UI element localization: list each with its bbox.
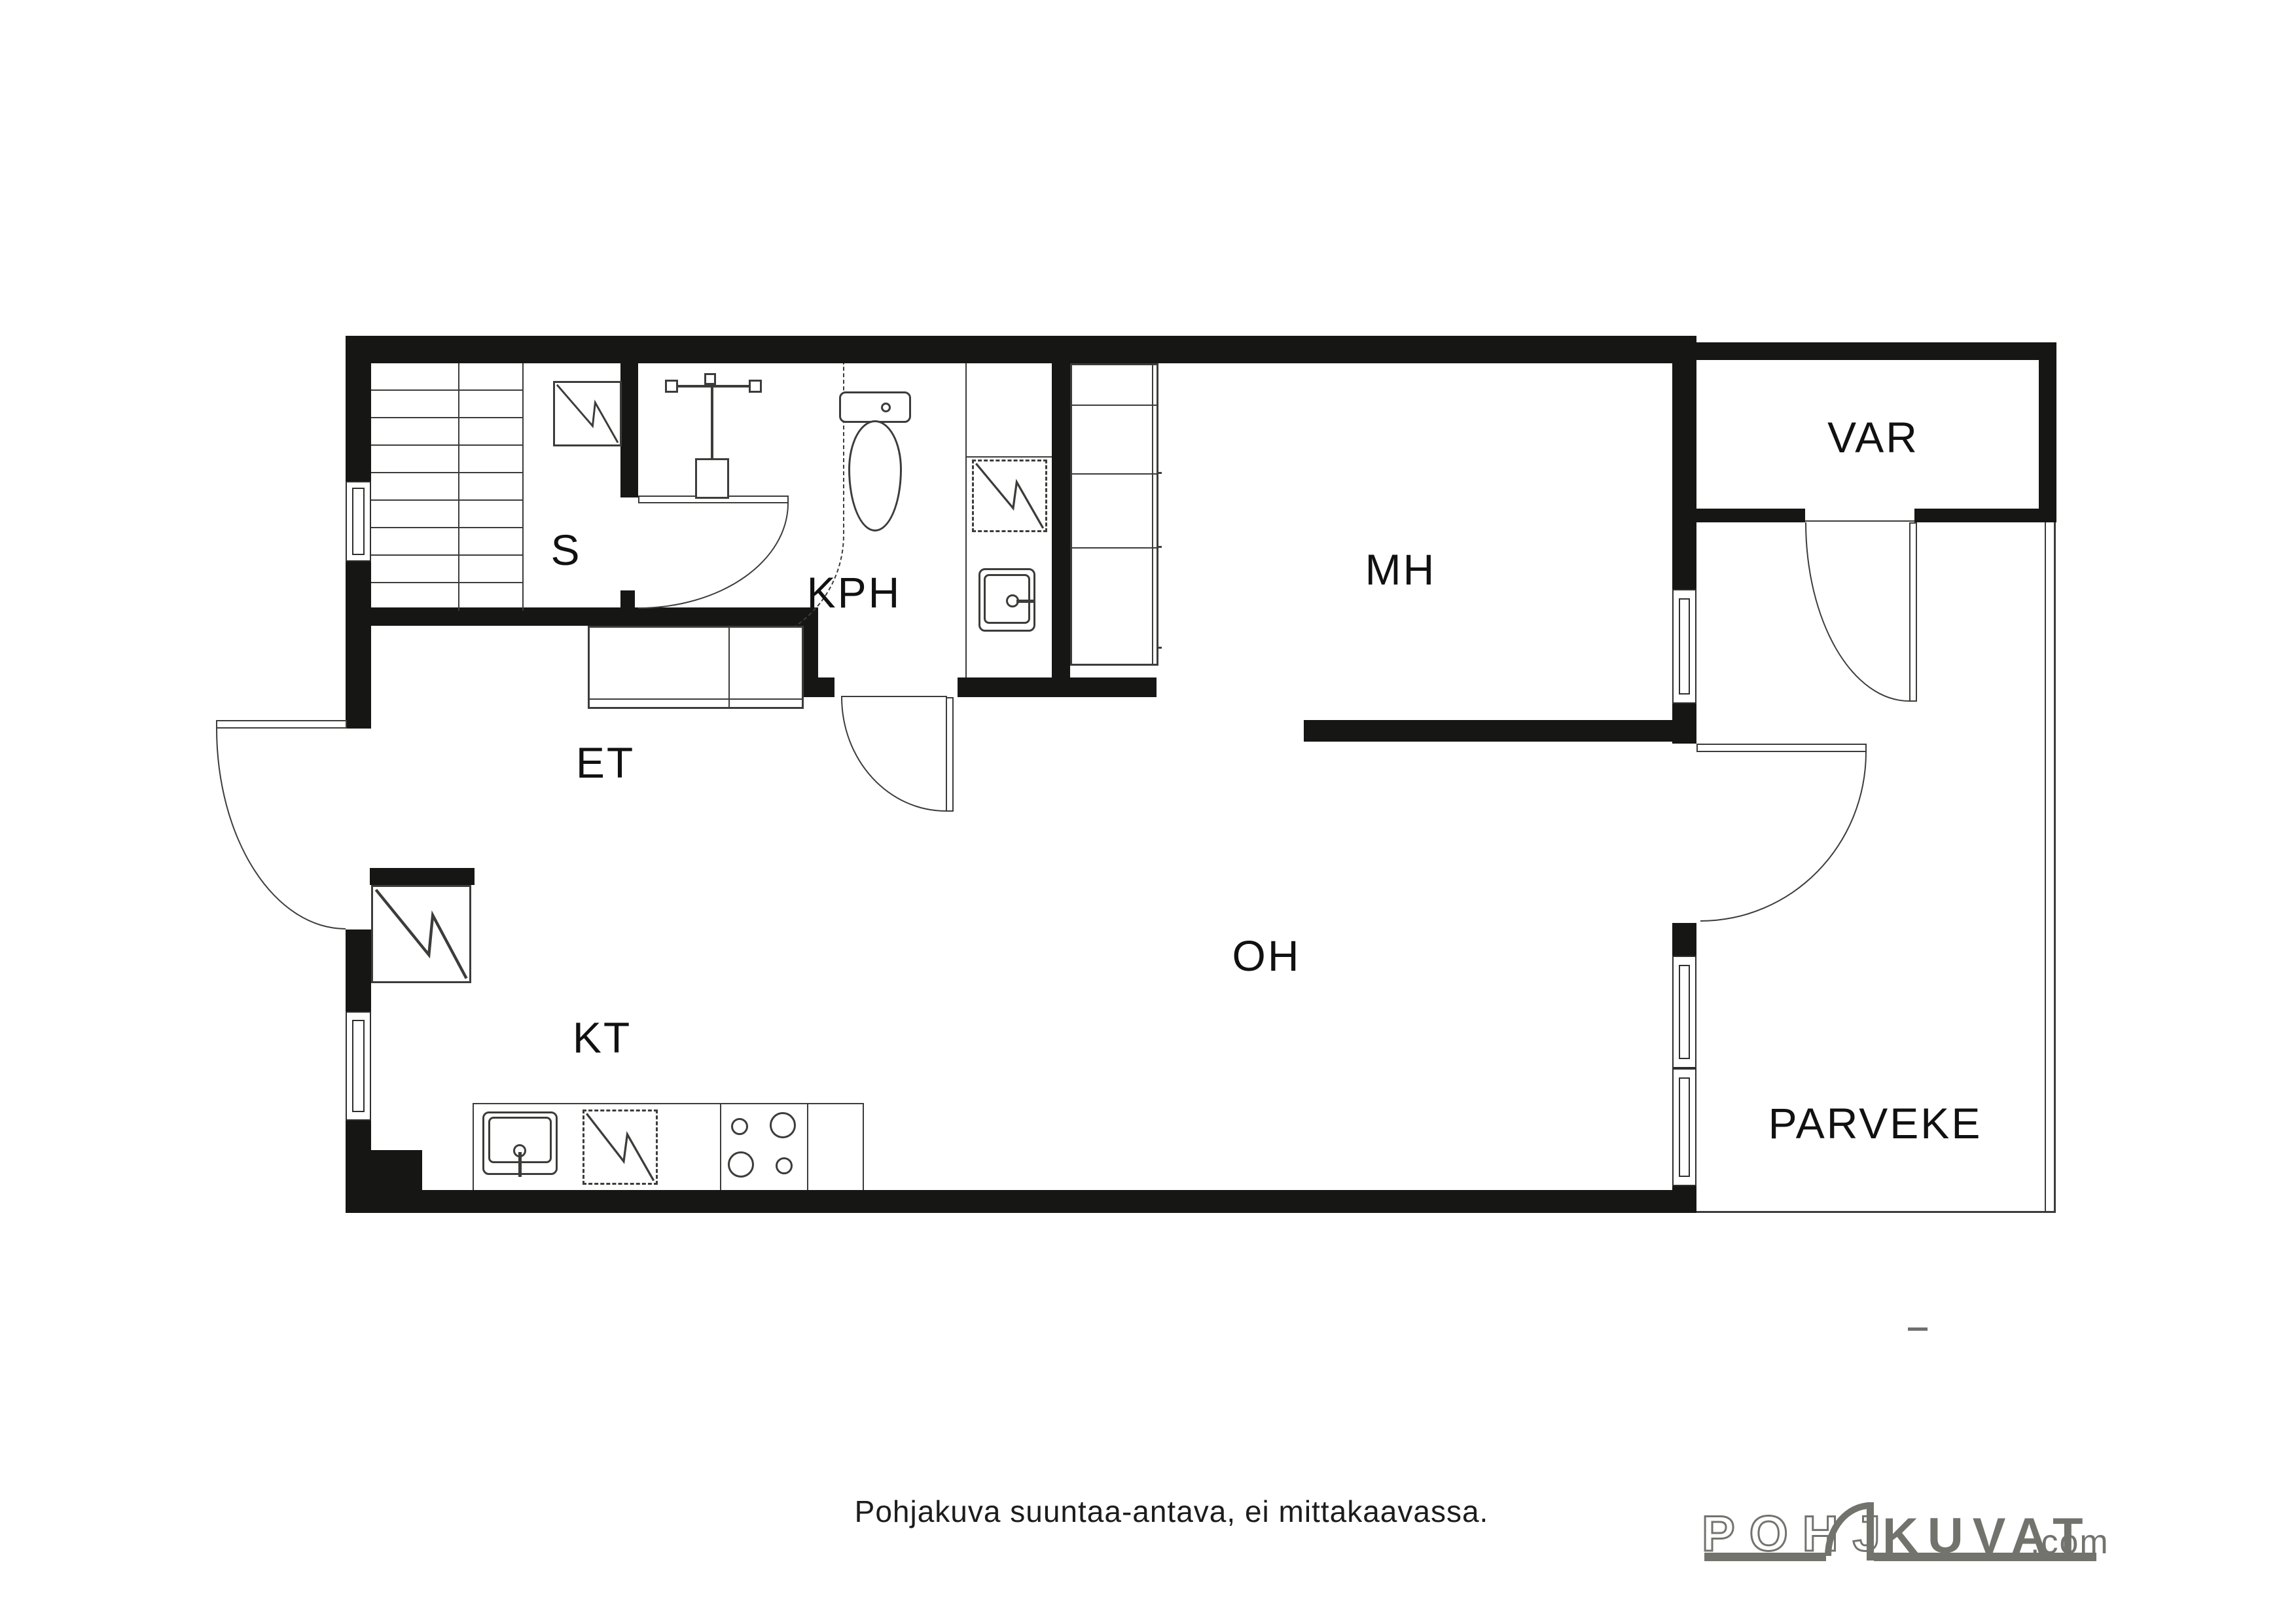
stove-4-burner-icon — [720, 1103, 808, 1190]
wall-var-bottom-right — [1914, 509, 2056, 522]
kph-door-leaf — [946, 697, 954, 812]
balcony-edge-right-inner — [2045, 522, 2046, 1213]
wall-left-4 — [346, 1121, 371, 1213]
label-balcony: PARVEKE — [1768, 1098, 1982, 1148]
label-entry: ET — [576, 738, 635, 787]
wall-top — [346, 336, 1696, 363]
label-sauna: S — [550, 525, 581, 575]
wall-step-block — [370, 1150, 422, 1190]
balcony-edge-right-outer — [2054, 522, 2056, 1213]
var-door-swing — [1805, 522, 1909, 702]
wall-jog-step — [818, 677, 834, 697]
var-door-threshold — [1805, 520, 1914, 522]
wall-right-3 — [1672, 923, 1696, 956]
label-storage: VAR — [1827, 412, 1919, 462]
window-right-living-2 — [1672, 1068, 1696, 1186]
tick-mark — [1908, 1327, 1928, 1331]
wardrobe-mh — [1070, 363, 1158, 666]
wall-sauna-kph-top — [620, 359, 638, 497]
window-left-sauna — [346, 481, 371, 562]
balcony-door-leaf — [1696, 744, 1867, 752]
logo-door-line — [1867, 1502, 1874, 1561]
wall-var-top — [1696, 342, 2056, 360]
entrance-door-swing — [216, 729, 346, 929]
kph-strip-left-line — [965, 363, 967, 677]
wall-left-3 — [346, 929, 371, 1011]
wall-right-1 — [1672, 359, 1696, 589]
wall-var-right — [2039, 342, 2056, 522]
window-right-bedroom — [1672, 589, 1696, 704]
caption: Pohjakuva suuntaa-antava, ei mittakaavas… — [779, 1494, 1564, 1529]
wall-kt-stub — [370, 868, 475, 885]
stairs-edge — [522, 363, 524, 611]
kph-strip-shelf-line — [965, 456, 1052, 458]
logo-text-com: .com — [2030, 1523, 2109, 1562]
wall-mh-oh — [1304, 720, 1696, 742]
wardrobe-et — [588, 626, 804, 709]
wall-kph-right — [1052, 359, 1070, 677]
washing-machine-icon — [972, 460, 1047, 532]
balcony-door-swing — [1700, 752, 1867, 922]
floor-plan: S KPH MH VAR ET KT OH PARVEKE Pohjakuva … — [0, 0, 2296, 1624]
balcony-edge-bottom — [1696, 1211, 2056, 1213]
wall-right-4 — [1672, 1186, 1696, 1213]
dishwasher-icon — [583, 1110, 658, 1185]
wall-bottom — [346, 1190, 1696, 1213]
wall-var-bottom-left — [1696, 509, 1805, 522]
sauna-stove-icon — [553, 381, 622, 446]
entrance-door-leaf — [216, 720, 347, 729]
kph-door-swing — [841, 697, 946, 812]
stairs-divider — [458, 363, 459, 611]
wall-left-2 — [346, 562, 371, 729]
label-kitchen: KT — [573, 1013, 632, 1062]
label-bedroom: MH — [1365, 545, 1437, 594]
stairs — [371, 363, 524, 611]
logo-baseline-left — [1704, 1553, 1826, 1561]
wall-sauna-kph-stub — [620, 590, 635, 607]
wall-kph-south — [958, 677, 1157, 697]
label-bathroom: KPH — [807, 568, 902, 617]
window-left-kitchen — [346, 1011, 371, 1121]
wall-left-1 — [346, 336, 371, 481]
window-right-living-1 — [1672, 956, 1696, 1068]
wall-jog — [804, 607, 818, 697]
fridge-icon — [371, 885, 471, 983]
var-door-leaf — [1909, 522, 1917, 702]
label-living: OH — [1232, 931, 1301, 981]
